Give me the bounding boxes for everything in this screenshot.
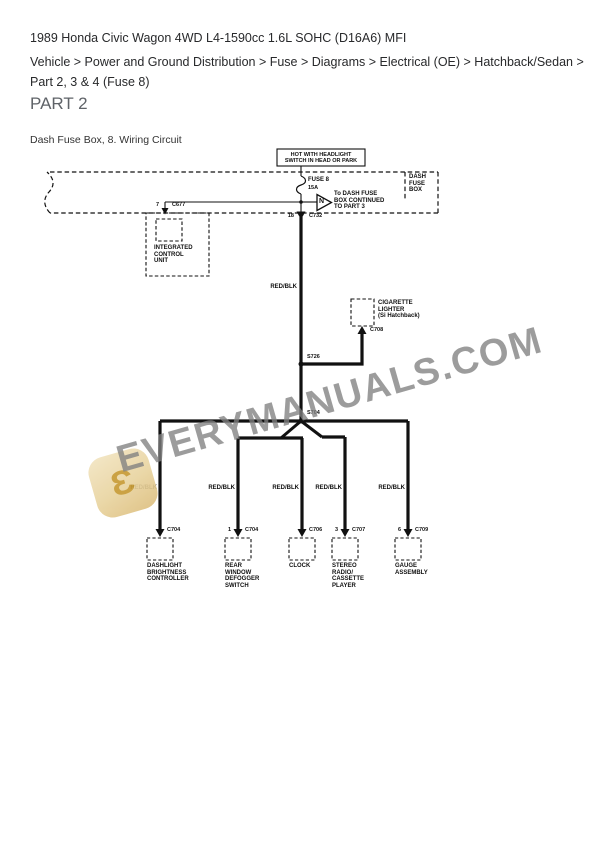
hot-note-label: HOT WITH HEADLIGHT SWITCH IN HEAD OR PAR…: [277, 152, 365, 164]
continuation-text: To DASH FUSE BOX CONTINUED TO PART 3: [334, 191, 384, 211]
branch1-connector: C704: [167, 527, 180, 533]
branch2-connector: C704: [245, 527, 258, 533]
wiring-diagram-svg: [0, 0, 612, 866]
component-connector-symbols: [156, 529, 413, 537]
component-outlines: [147, 538, 421, 560]
torn-edge: [45, 172, 53, 213]
branch3-wire-color: RED/BLK: [259, 485, 299, 492]
component-gauge-assembly: GAUGE ASSEMBLY: [395, 563, 428, 576]
fuse-name: FUSE 8: [308, 177, 329, 184]
branch4-connector: C707: [352, 527, 365, 533]
dash-fuse-box-label: DASH FUSE BOX: [409, 174, 426, 194]
branch5-wire-color: RED/BLK: [365, 485, 405, 492]
icu-pin: 7: [147, 202, 159, 208]
branch2-wire-color: RED/BLK: [195, 485, 235, 492]
lighter-connector-symbol: [358, 326, 367, 334]
branch3-connector: C706: [309, 527, 322, 533]
continuation-arrow-letter: N: [315, 199, 328, 206]
lighter-name: CIGARETTE LIGHTER (Si Hatchback): [378, 300, 420, 320]
component-rear-window-defogger-switch: REAR WINDOW DEFOGGER SWITCH: [225, 563, 259, 589]
c732-pin: 18: [280, 213, 294, 219]
branch5-connector: C709: [415, 527, 428, 533]
component-dashlight-brightness-controller: DASHLIGHT BRIGHTNESS CONTROLLER: [147, 563, 189, 583]
branch5-pin: 6: [392, 527, 401, 533]
component-clock: CLOCK: [289, 563, 310, 570]
branch2-pin: 1: [222, 527, 231, 533]
manual-page: 1989 Honda Civic Wagon 4WD L4-1590cc 1.6…: [0, 0, 612, 866]
branch4-pin: 3: [329, 527, 338, 533]
fuse-rating: 15A: [308, 185, 318, 191]
lighter-connector-label: C708: [370, 327, 383, 333]
main-wire-color: RED/BLK: [257, 284, 297, 291]
c732-connector-label: C732: [309, 213, 322, 219]
fuse-symbol: [297, 176, 306, 194]
splice-s726-label: S726: [307, 354, 320, 360]
lighter-outline: [351, 299, 374, 326]
icu-name: INTEGRATED CONTROL UNIT: [154, 245, 193, 265]
branch4-wire-color: RED/BLK: [302, 485, 342, 492]
component-stereo-radio-cassette-player: STEREO RADIO/ CASSETTE PLAYER: [332, 563, 364, 589]
icu-connector-label: C677: [172, 202, 185, 208]
